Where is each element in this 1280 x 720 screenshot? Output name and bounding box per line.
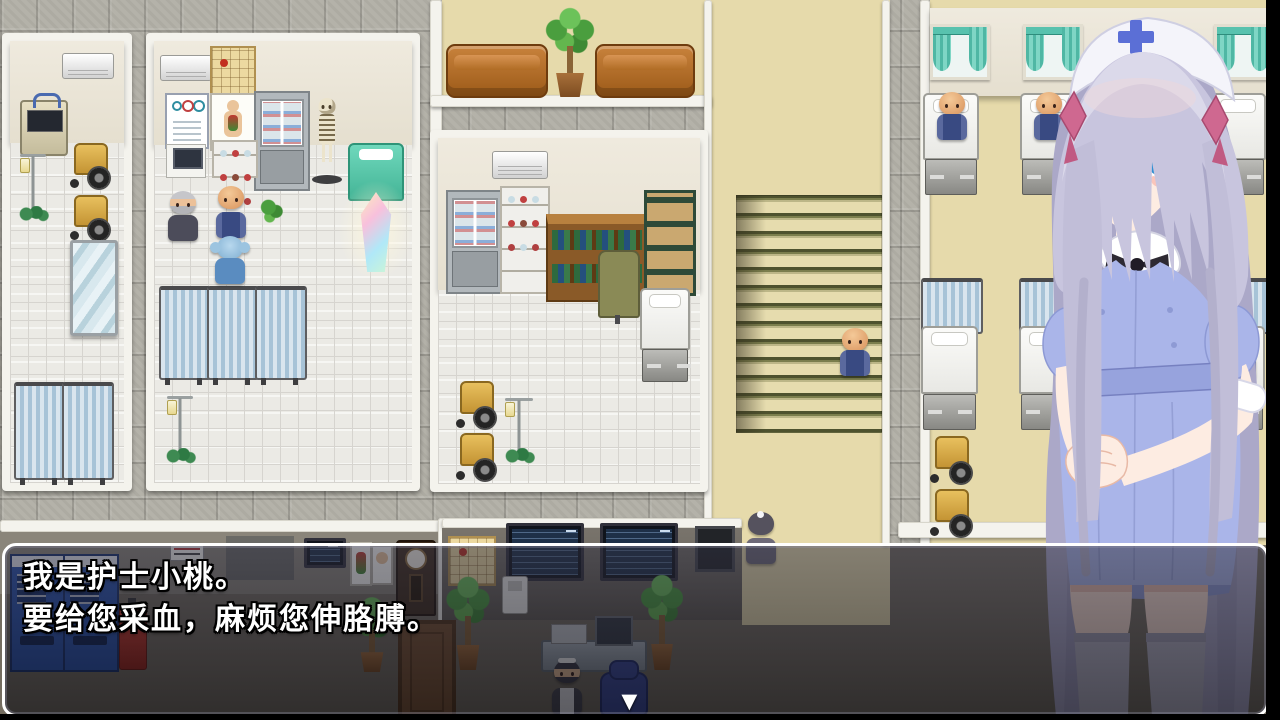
small-plant: [258, 196, 284, 224]
office-chair[interactable]: [598, 250, 640, 318]
curtain-valance: [933, 27, 987, 35]
storage-rack: [644, 190, 696, 296]
sofa: [446, 44, 548, 98]
hospital-bed[interactable]: [640, 288, 690, 382]
eye-chart[interactable]: [165, 93, 209, 149]
privacy-screen: [14, 382, 66, 480]
dialogue-line-1: 我是护士小桃。: [23, 552, 247, 596]
air-conditioner: [492, 151, 548, 179]
wheelchair[interactable]: [66, 192, 112, 242]
wheelchair[interactable]: [452, 430, 498, 482]
sofa: [595, 44, 695, 98]
wheelchair[interactable]: [926, 486, 974, 538]
iv-stand[interactable]: [502, 392, 536, 464]
wheelchair[interactable]: [452, 378, 498, 430]
air-conditioner: [160, 55, 212, 81]
iv-stand[interactable]: [18, 148, 48, 222]
game-screen[interactable]: 我是护士小桃。 要给您采血，麻烦您伸胳膊。 ▼: [0, 0, 1280, 720]
privacy-screen: [62, 382, 114, 480]
medicine-cabinet[interactable]: [254, 91, 310, 191]
privacy-screen: [207, 286, 259, 380]
npc-ward-patient[interactable]: [936, 92, 968, 140]
continue-indicator[interactable]: ▼: [616, 686, 643, 717]
npc-patient-on-stairs[interactable]: [838, 328, 872, 376]
wall-calendar[interactable]: [210, 46, 256, 98]
wall-trim: [0, 520, 445, 532]
wall-trim: [882, 0, 890, 545]
stairs[interactable]: [736, 195, 882, 433]
dish-shelf: [500, 186, 550, 294]
npc-doctor[interactable]: [165, 191, 201, 241]
desk-computer[interactable]: [166, 144, 206, 178]
npc-player-girl[interactable]: [210, 236, 250, 284]
privacy-screen: [159, 286, 211, 380]
glass-cabinet[interactable]: [446, 190, 504, 294]
npc-bald-patient[interactable]: [213, 186, 249, 238]
dialogue-line-2: 要给您采血，麻烦您伸胳膊。: [23, 594, 439, 638]
skeleton-model[interactable]: [308, 98, 346, 184]
bottom-black-bar: [0, 714, 1280, 720]
privacy-screen: [255, 286, 307, 380]
ward-window: [930, 24, 990, 80]
wall-trim: [430, 0, 442, 140]
air-conditioner: [62, 53, 114, 79]
mirror[interactable]: [70, 240, 118, 336]
right-black-bar: [1266, 0, 1280, 720]
wheelchair[interactable]: [926, 433, 974, 485]
potted-plant: [543, 4, 597, 97]
ward-bed[interactable]: [921, 326, 978, 430]
wheelchair[interactable]: [66, 140, 112, 190]
bottle-shelf: [212, 140, 258, 178]
iv-stand[interactable]: [164, 390, 196, 464]
